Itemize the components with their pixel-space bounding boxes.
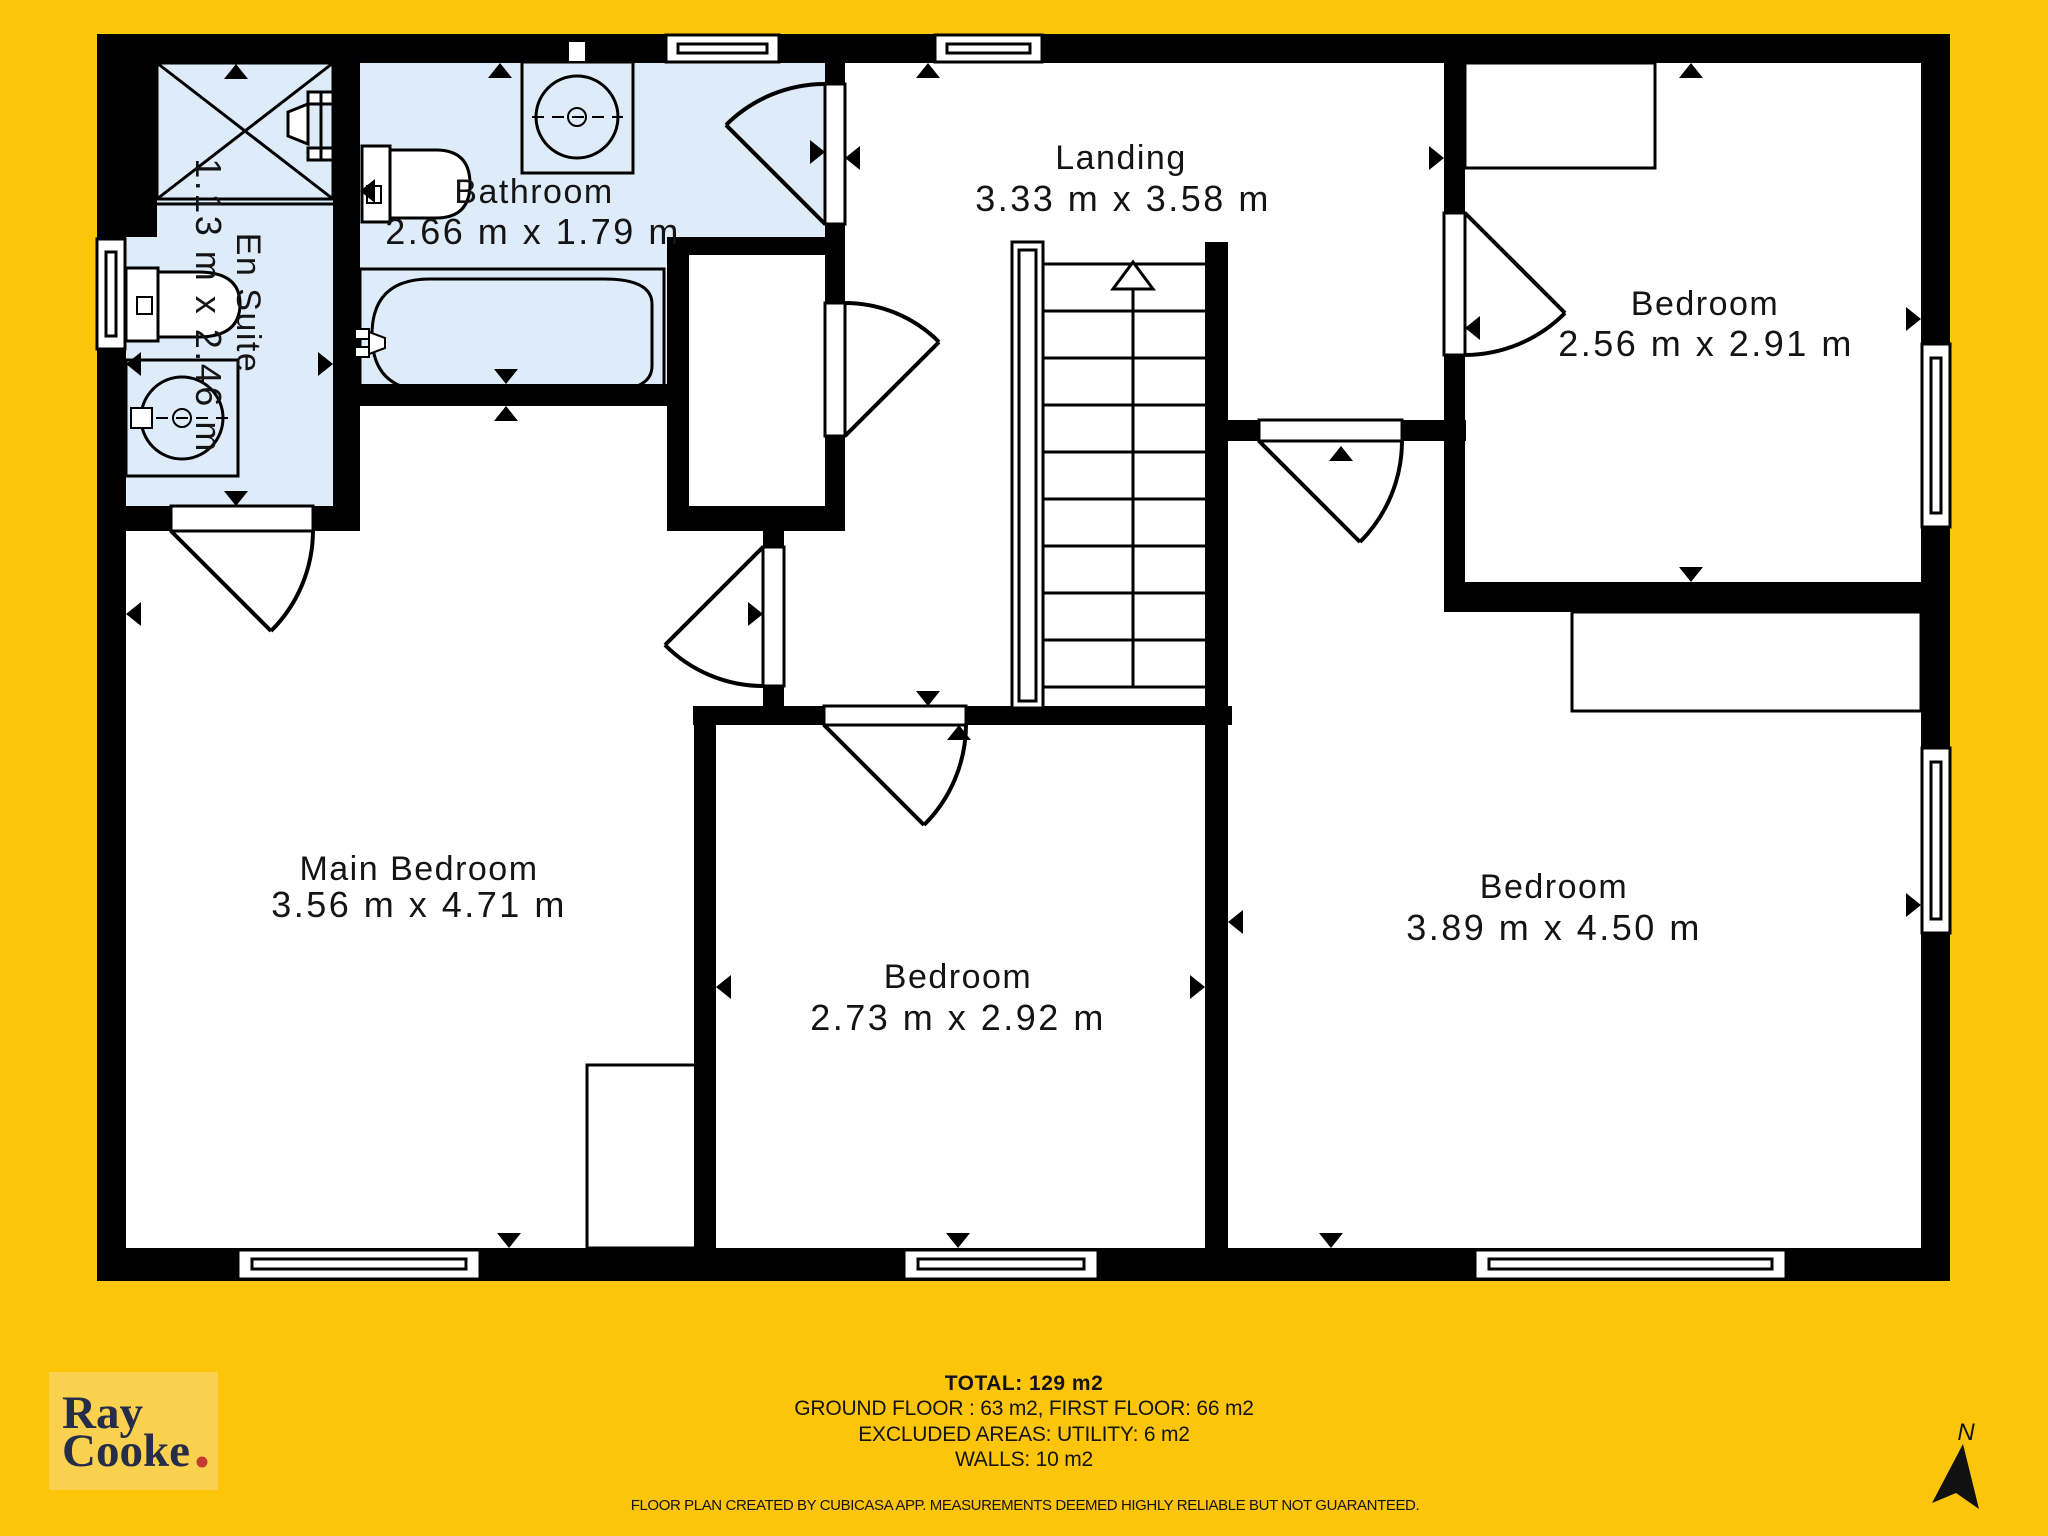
svg-text:Cooke: Cooke bbox=[62, 1425, 190, 1477]
svg-text:2.66 m x 1.79 m: 2.66 m x 1.79 m bbox=[385, 211, 681, 252]
svg-text:GROUND FLOOR : 63 m2, FIRST FL: GROUND FLOOR : 63 m2, FIRST FLOOR: 66 m2 bbox=[794, 1397, 1254, 1420]
svg-text:2.56 m x 2.91 m: 2.56 m x 2.91 m bbox=[1558, 323, 1854, 364]
svg-text:2.73 m x 2.92 m: 2.73 m x 2.92 m bbox=[810, 997, 1106, 1038]
svg-text:En Suite: En Suite bbox=[229, 233, 267, 374]
svg-text:Bedroom: Bedroom bbox=[884, 958, 1032, 996]
svg-text:Bedroom: Bedroom bbox=[1480, 868, 1628, 906]
svg-text:3.89 m x 4.50 m: 3.89 m x 4.50 m bbox=[1406, 907, 1702, 948]
svg-text:FLOOR PLAN CREATED BY CUBICASA: FLOOR PLAN CREATED BY CUBICASA APP. MEAS… bbox=[631, 1497, 1420, 1514]
svg-text:N: N bbox=[1957, 1419, 1975, 1446]
svg-text:WALLS: 10 m2: WALLS: 10 m2 bbox=[955, 1448, 1093, 1471]
svg-text:Bedroom: Bedroom bbox=[1631, 285, 1779, 323]
svg-text:Main Bedroom: Main Bedroom bbox=[299, 850, 538, 888]
svg-text:Bathroom: Bathroom bbox=[454, 173, 613, 211]
svg-text:3.33 m x 3.58 m: 3.33 m x 3.58 m bbox=[975, 178, 1271, 219]
svg-text:Landing: Landing bbox=[1055, 139, 1187, 177]
svg-text:3.56 m x 4.71 m: 3.56 m x 4.71 m bbox=[271, 884, 567, 925]
svg-text:1.13 m x 2.46 m: 1.13 m x 2.46 m bbox=[188, 158, 229, 454]
svg-text:TOTAL: 129 m2: TOTAL: 129 m2 bbox=[945, 1372, 1104, 1395]
svg-text:EXCLUDED AREAS: UTILITY: 6 m2: EXCLUDED AREAS: UTILITY: 6 m2 bbox=[858, 1423, 1189, 1446]
